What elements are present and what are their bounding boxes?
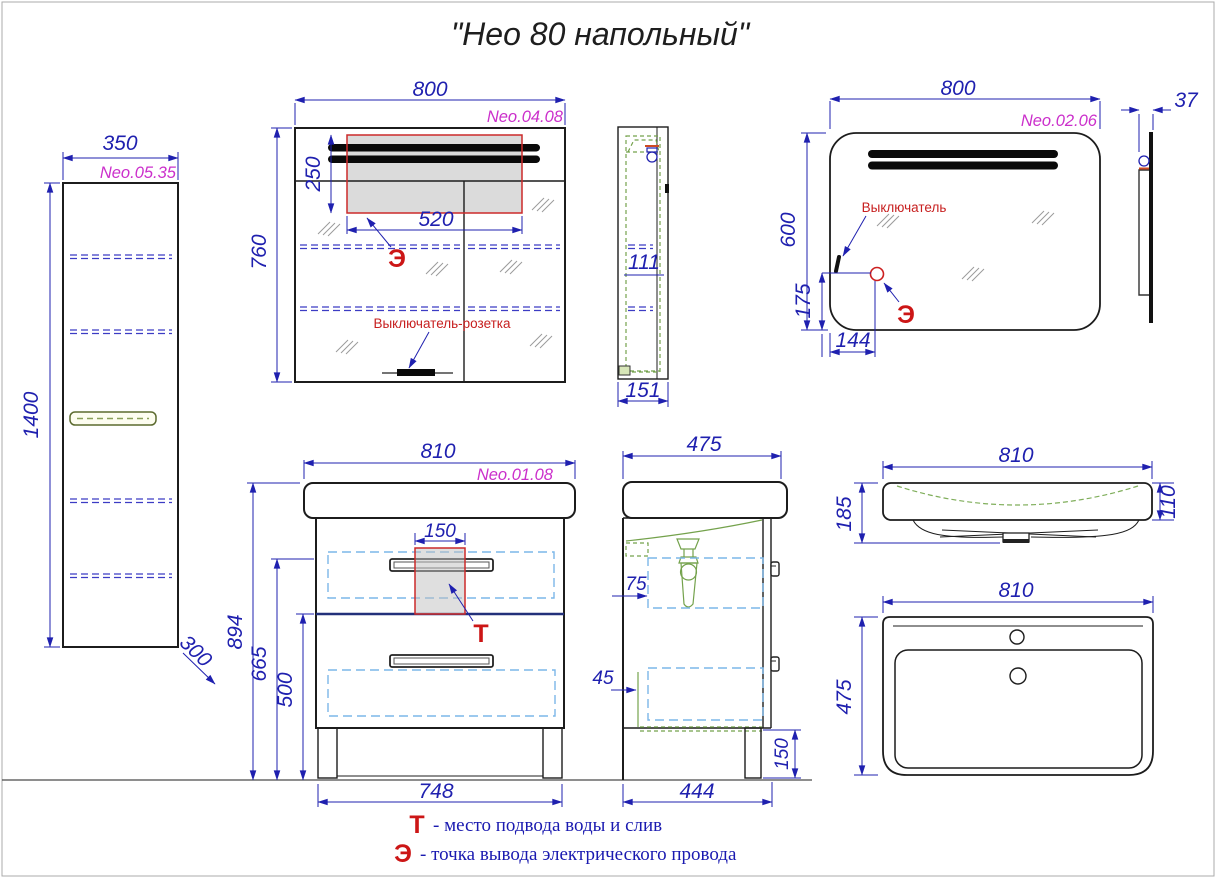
legend-t-text: - место подвода воды и слив <box>433 815 662 836</box>
dim-back-gap-label: 75 <box>625 574 647 595</box>
dim-e-offset-x-label: 144 <box>835 329 870 352</box>
side-handle-icon <box>665 184 669 193</box>
water-zone-outline <box>415 548 465 614</box>
vanity-side-sink-profile <box>623 482 787 518</box>
legend-e-marker: Э <box>394 840 412 868</box>
page-title: "Нео 80 напольный" <box>451 16 751 52</box>
lamp-bar-icon <box>328 156 540 164</box>
dim-mirror-height-label: 600 <box>777 212 800 247</box>
tall-cabinet-handle <box>70 412 156 425</box>
sink-front-outline <box>883 483 1152 520</box>
switch-label: Выключатель <box>862 200 947 215</box>
dim-tall-width-label: 350 <box>102 132 137 155</box>
dim-vanity-legs-span-label: 748 <box>418 780 453 803</box>
drawer-handle-profile <box>771 562 779 576</box>
dim-mirror-thickness-label: 37 <box>1174 89 1199 112</box>
dim-side-bottom-width-label: 444 <box>679 780 714 803</box>
legend-e-text: - точка вывода электрического провода <box>420 844 737 865</box>
dim-sink-rim-height: 110 <box>1152 483 1180 520</box>
faucet-hole-icon <box>1010 630 1024 644</box>
drawing-sheet: "Нео 80 напольный" 350 Neo.05.35 1400 <box>0 0 1218 883</box>
dim-sink-depth-label: 475 <box>833 679 856 714</box>
dim-lamp-height-label: 250 <box>302 156 325 192</box>
drain-hole-icon <box>1010 668 1026 684</box>
e-marker: Э <box>897 301 915 329</box>
dim-sink-front-height-label: 185 <box>833 496 856 531</box>
drawer-handle <box>390 655 493 667</box>
dim-sink-rim-height-label: 110 <box>1157 485 1180 519</box>
dim-shelf-spacing-label: 111 <box>628 251 660 274</box>
technical-drawing: "Нео 80 напольный" 350 Neo.05.35 1400 <box>0 0 1218 883</box>
product-code-mirror: Neo.02.06 <box>1021 112 1098 130</box>
dim-side-depth-label: 475 <box>686 433 721 456</box>
t-marker: Т <box>473 620 488 648</box>
lamp-bar-icon <box>868 150 1058 158</box>
e-marker: Э <box>388 245 406 273</box>
dim-sink-width-label: 810 <box>998 444 1033 467</box>
dim-tall-height-label: 1400 <box>20 391 43 438</box>
dim-mirror-width-label: 800 <box>940 77 975 100</box>
switch-socket-label: Выключатель-розетка <box>373 316 511 331</box>
dim-side-gap-label: 45 <box>592 668 614 689</box>
dim-e-offset-y-label: 175 <box>792 283 815 318</box>
product-code-vanity: Neo.01.08 <box>477 466 554 484</box>
product-code-tall-cabinet: Neo.05.35 <box>100 164 177 182</box>
dim-vanity-drawer-height-label: 500 <box>274 672 297 707</box>
dim-vanity-mid-height-label: 665 <box>248 646 271 681</box>
dim-sink-top-width-label: 810 <box>998 579 1033 602</box>
drawer-handle-profile <box>771 657 779 671</box>
product-code-mirror-cabinet: Neo.04.08 <box>487 108 564 126</box>
dim-mirror-cabinet-width-label: 800 <box>412 78 447 101</box>
dim-shelf-spacing: 111 <box>624 251 664 275</box>
dim-drain-width-label: 150 <box>424 521 456 542</box>
dim-vanity-width-label: 810 <box>420 440 455 463</box>
lamp-bar-icon <box>328 144 540 152</box>
dim-vanity-height-label: 894 <box>224 614 247 649</box>
dim-lamp-width-label: 520 <box>418 208 453 231</box>
vanity-sink-top <box>304 483 575 518</box>
legend-t-marker: Т <box>409 811 424 839</box>
dim-mirror-cabinet-depth-label: 151 <box>625 379 660 402</box>
lamp-bar-icon <box>868 162 1058 170</box>
dim-leg-height-label: 150 <box>772 738 793 770</box>
dim-mirror-cabinet-height-label: 760 <box>248 234 271 269</box>
